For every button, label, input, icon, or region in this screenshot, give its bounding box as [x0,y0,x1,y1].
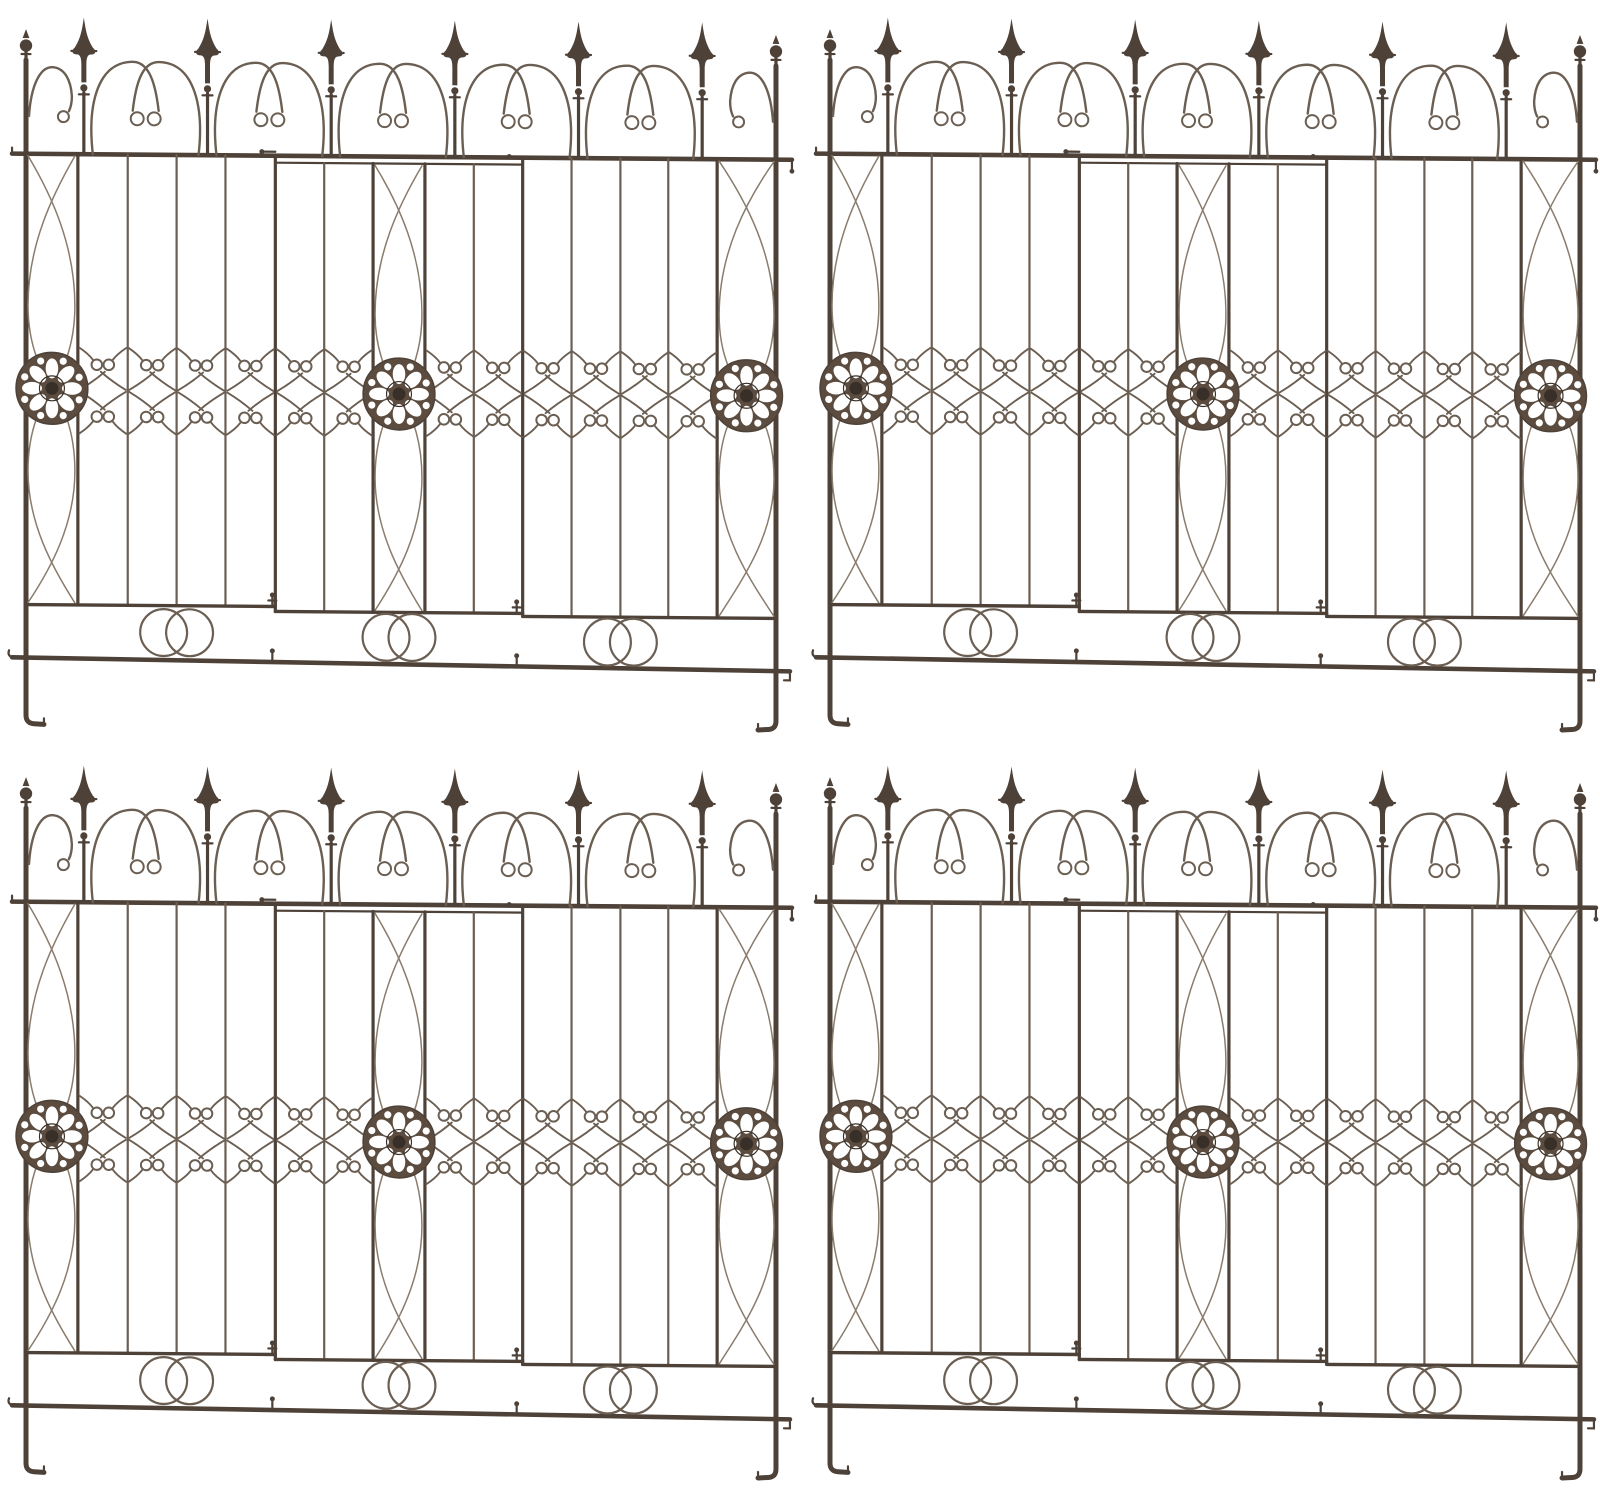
fence-panel-bottom-right [810,752,1598,1492]
fence-panel-bottom-left [6,752,794,1492]
fence-panel-top-right [810,4,1598,744]
fence-panel-top-left [6,4,794,744]
product-photo-canvas [0,0,1600,1496]
